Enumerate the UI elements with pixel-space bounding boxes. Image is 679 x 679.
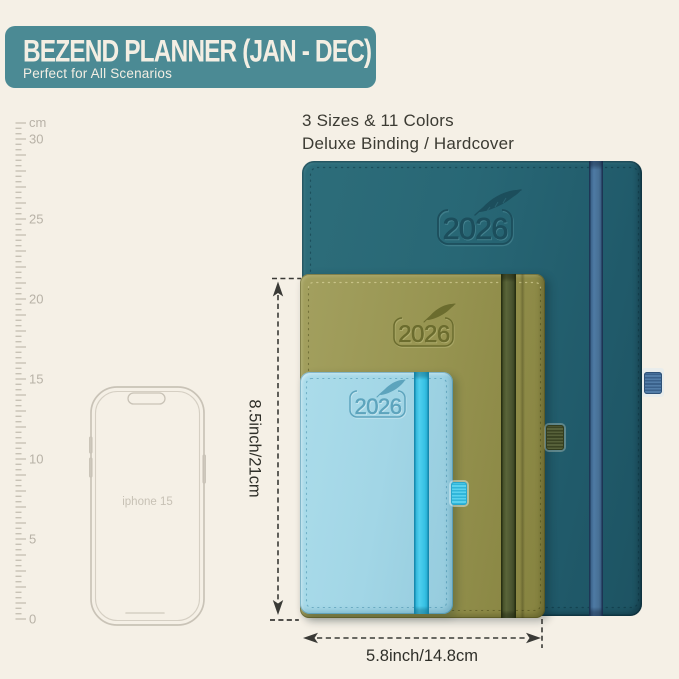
svg-text:iphone 15: iphone 15 bbox=[122, 496, 173, 508]
svg-text:cm: cm bbox=[29, 115, 46, 130]
svg-text:2026: 2026 bbox=[355, 394, 402, 419]
svg-text:10: 10 bbox=[29, 452, 43, 467]
svg-text:30: 30 bbox=[29, 132, 43, 147]
svg-text:15: 15 bbox=[29, 372, 43, 387]
svg-text:20: 20 bbox=[29, 292, 43, 307]
svg-text:0: 0 bbox=[29, 612, 36, 627]
svg-text:25: 25 bbox=[29, 212, 43, 227]
svg-text:5: 5 bbox=[29, 532, 36, 547]
svg-text:2026: 2026 bbox=[398, 321, 450, 348]
svg-text:2026: 2026 bbox=[443, 211, 508, 246]
